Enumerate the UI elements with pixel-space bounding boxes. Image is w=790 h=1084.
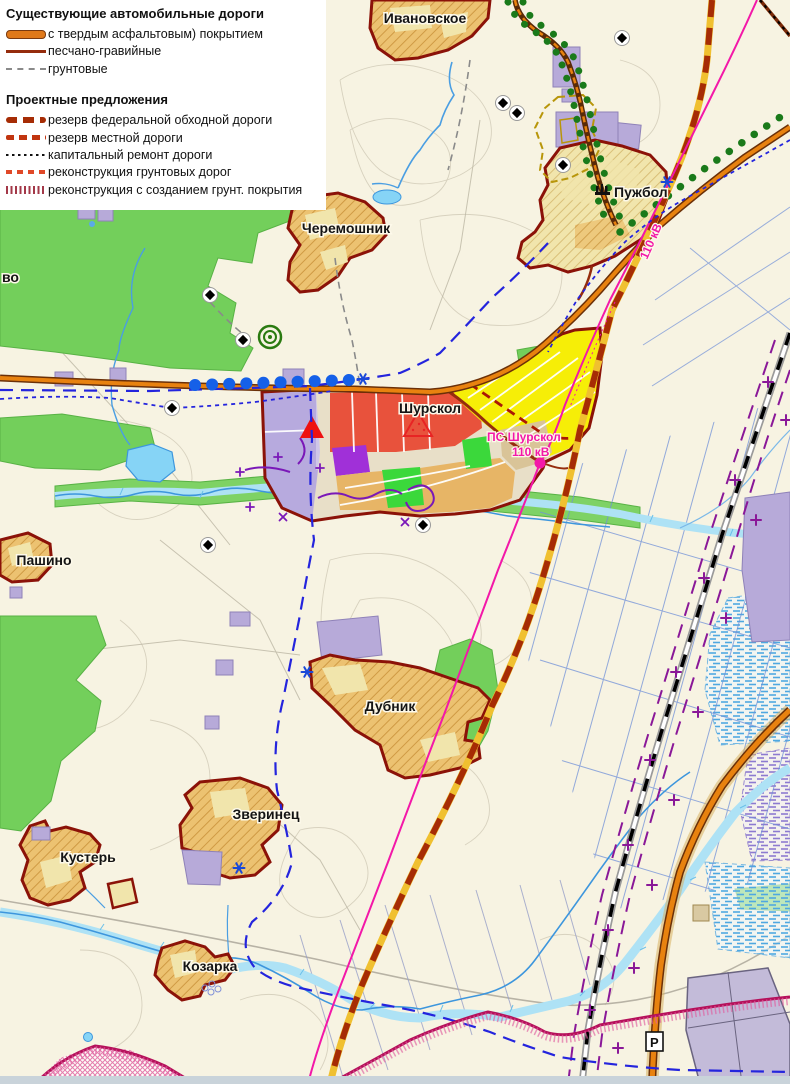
scan-edge-strip bbox=[0, 1076, 790, 1084]
surface-reconstruction-swatch bbox=[6, 186, 46, 194]
industrial-block bbox=[686, 968, 790, 1084]
label-substation-voltage: 110 кВ bbox=[512, 445, 550, 459]
label-puzhbol: Пужбол bbox=[614, 184, 668, 200]
map-page: P Ивановское во Черемошник Пужбол Шурско… bbox=[0, 0, 790, 1084]
local-reserve-swatch bbox=[6, 135, 46, 140]
legend-item-capital-repair: капитальный ремонт дороги bbox=[6, 148, 318, 162]
label-cheremoshnik: Черемошник bbox=[302, 220, 391, 236]
capital-repair-swatch bbox=[6, 154, 46, 157]
legend-label: грунтовые bbox=[48, 62, 108, 76]
legend-existing-title: Существующие автомобильные дороги bbox=[6, 6, 318, 21]
gravel-line-swatch bbox=[6, 50, 46, 53]
parking-symbol: P bbox=[646, 1032, 663, 1051]
legend-proposals-title: Проектные предложения bbox=[6, 92, 318, 107]
federal-reserve-swatch bbox=[6, 117, 46, 123]
label-dubnik: Дубник bbox=[365, 698, 417, 714]
legend-label: песчано-гравийные bbox=[48, 44, 161, 58]
dirt-reconstruction-swatch bbox=[6, 170, 46, 174]
legend-label: реконструкция с созданием грунт. покрыти… bbox=[48, 183, 302, 197]
label-kozarka: Козарка bbox=[183, 958, 238, 974]
substation-dot bbox=[535, 458, 546, 469]
label-zverinets: Зверинец bbox=[233, 806, 300, 822]
legend-panel: Существующие автомобильные дороги с твер… bbox=[0, 0, 326, 210]
legend-item-dirt-reconstruction: реконструкция грунтовых дорог bbox=[6, 165, 318, 179]
legend-label: реконструкция грунтовых дорог bbox=[48, 165, 231, 179]
label-edge-partial: во bbox=[2, 269, 19, 285]
asphalt-line-swatch bbox=[6, 30, 46, 39]
legend-item-asphalt: с твердым асфальтовым) покрытием bbox=[6, 27, 318, 41]
label-kuster: Кустерь bbox=[60, 849, 116, 865]
parking-letter: P bbox=[650, 1035, 659, 1050]
legend-item-dirt: грунтовые bbox=[6, 62, 318, 76]
legend-item-federal-reserve: резерв федеральной обходной дороги bbox=[6, 113, 318, 127]
dirt-line-swatch bbox=[6, 68, 46, 70]
legend-item-gravel: песчано-гравийные bbox=[6, 44, 318, 58]
label-substation: ПС Шурскол bbox=[487, 430, 561, 444]
legend-label: резерв федеральной обходной дороги bbox=[48, 113, 272, 127]
legend-item-local-reserve: резерв местной дороги bbox=[6, 131, 318, 145]
legend-label: с твердым асфальтовым) покрытием bbox=[48, 27, 263, 41]
legend-label: капитальный ремонт дороги bbox=[48, 148, 212, 162]
legend-item-surface-reconstruction: реконструкция с созданием грунт. покрыти… bbox=[6, 183, 318, 197]
legend-label: резерв местной дороги bbox=[48, 131, 183, 145]
label-ivanovskoye: Ивановское bbox=[384, 10, 467, 26]
label-pashino: Пашино bbox=[16, 552, 71, 568]
label-shurskol: Шурскол bbox=[399, 400, 461, 416]
